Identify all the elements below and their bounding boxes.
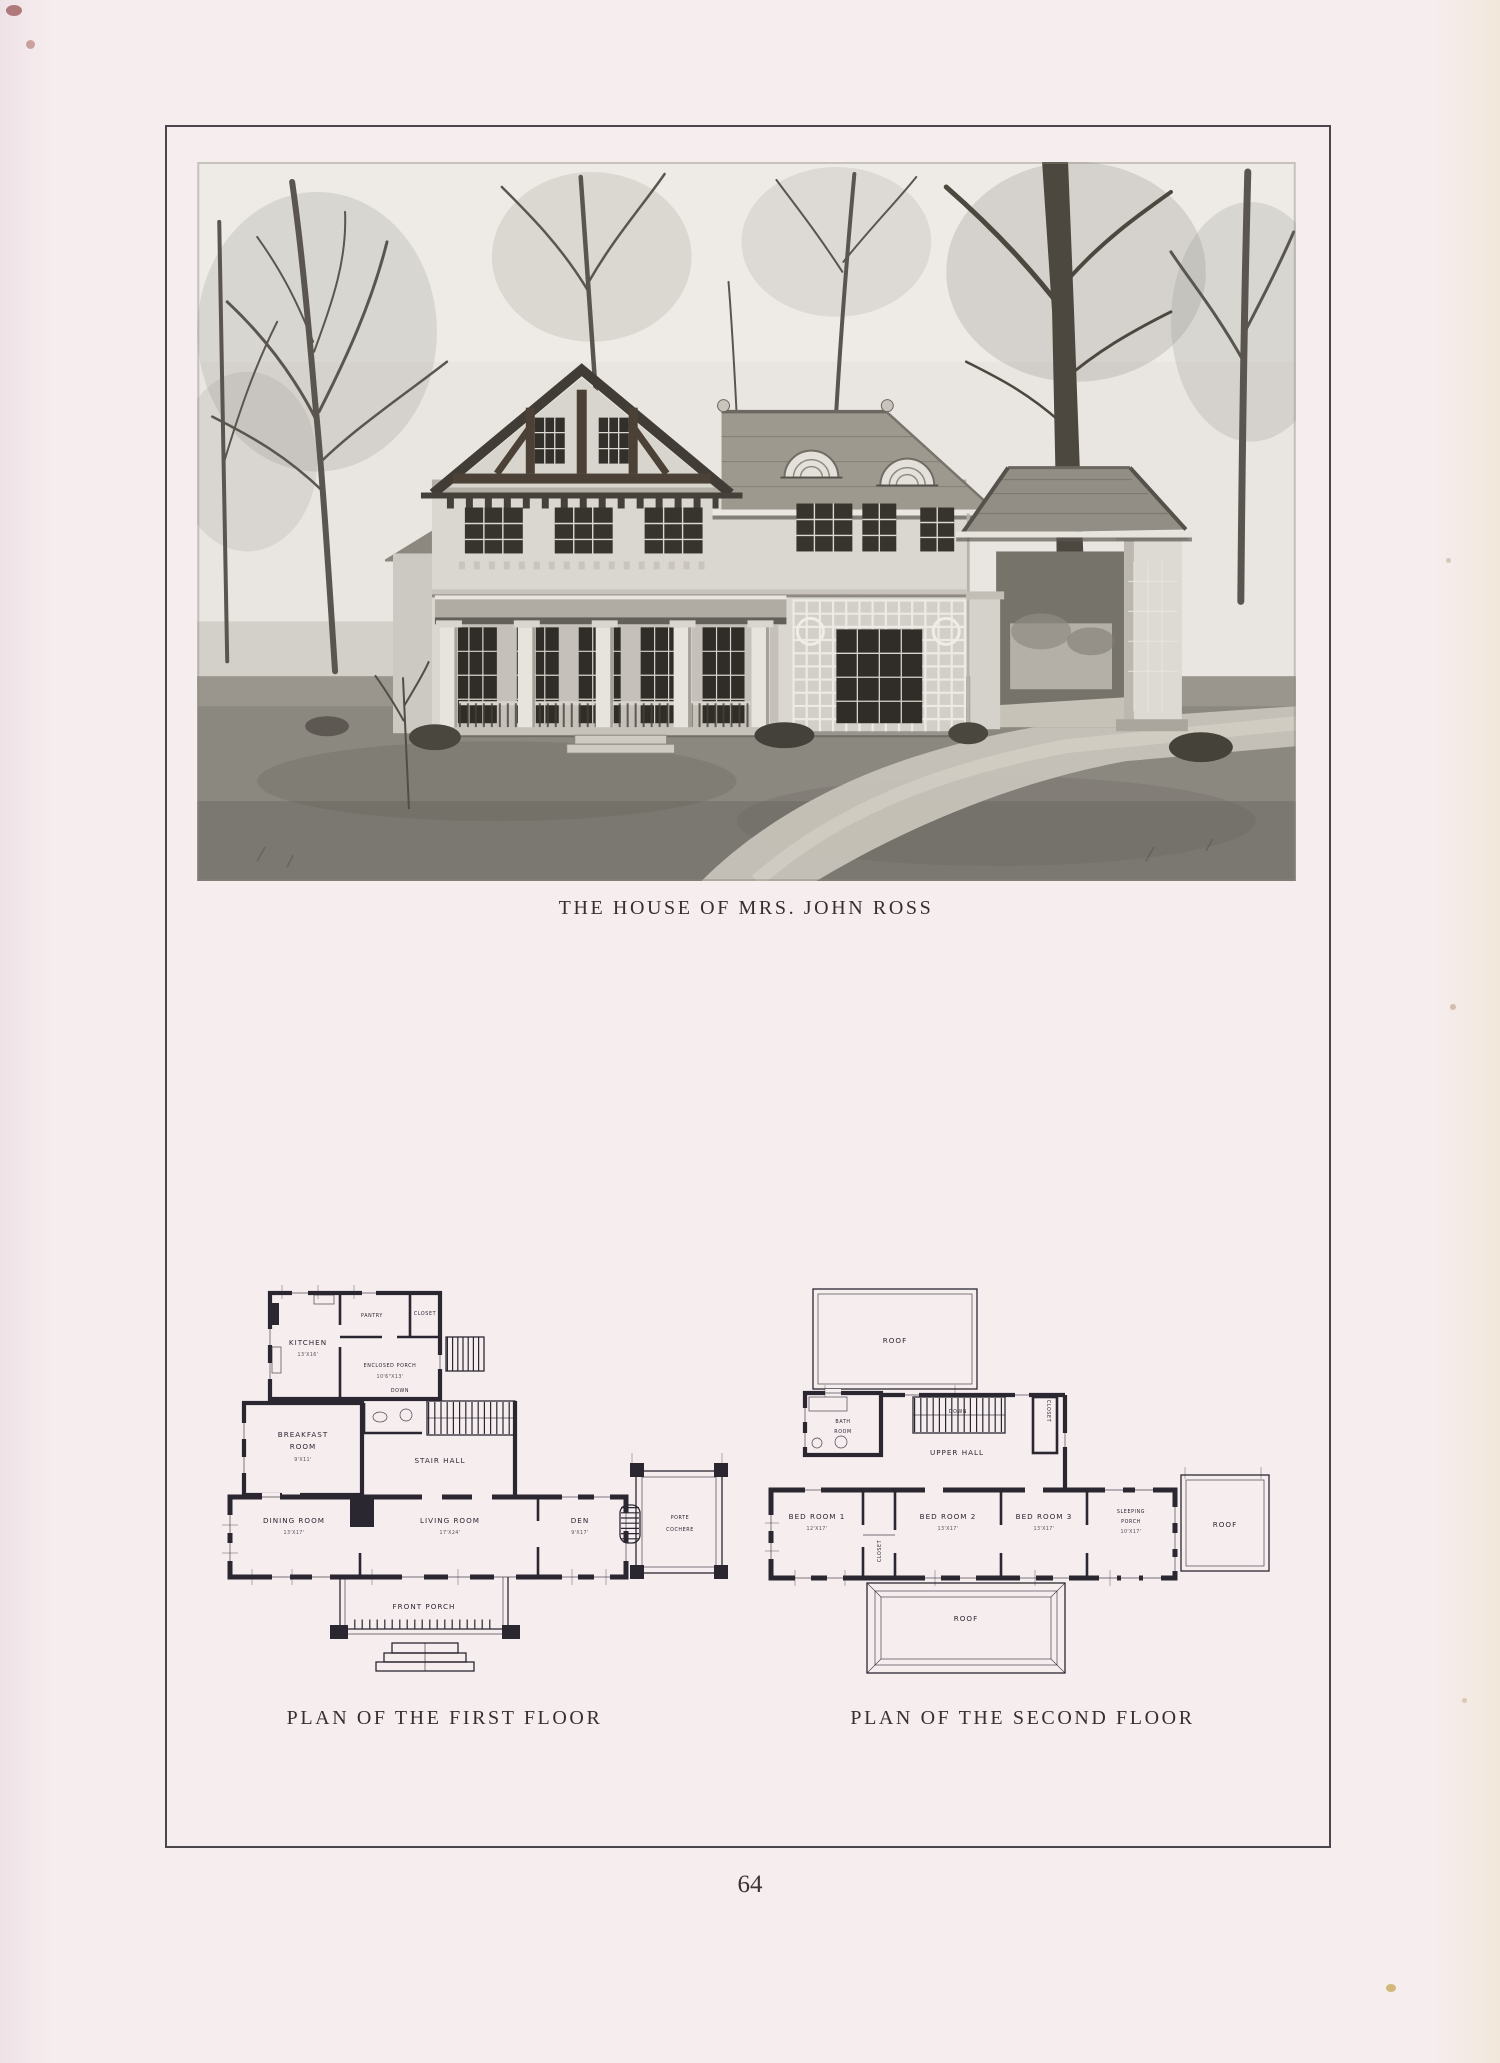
paper-speck [1450, 1004, 1456, 1010]
room-dim-den: 9'X17' [571, 1530, 588, 1536]
closet-label: CLOSET [1045, 1400, 1051, 1422]
room-label-upper-hall: UPPER HALL [930, 1448, 984, 1457]
first-floor-caption: PLAN OF THE FIRST FLOOR [222, 1707, 667, 1730]
room-label-breakfast-1: BREAKFAST [278, 1430, 328, 1439]
paper-speck [1446, 558, 1451, 563]
roof-label-top: ROOF [883, 1336, 907, 1345]
porte-cochere-plan [620, 1463, 728, 1579]
main-block-walls [226, 1493, 630, 1581]
dimension-ticks [765, 1385, 1261, 1586]
upper-stairs [913, 1397, 1005, 1433]
room-dim-enclosed-porch: 10'6"X13' [377, 1374, 404, 1380]
closet-label: CLOSET [877, 1540, 883, 1562]
room-label-front-porch: FRONT PORCH [393, 1602, 456, 1611]
room-label-bath-1: BATH [835, 1419, 850, 1425]
room-label-closet: CLOSET [414, 1311, 436, 1317]
roof-label-bottom: ROOF [954, 1614, 978, 1623]
room-dim-living: 17'X24' [440, 1530, 461, 1536]
room-dim-bed3: 13'X17' [1034, 1526, 1055, 1532]
room-label-porte-2: COCHERE [666, 1527, 694, 1533]
room-label-enclosed-porch: ENCLOSED PORCH [364, 1363, 417, 1369]
room-label-pantry: PANTRY [361, 1313, 383, 1319]
photo-caption: THE HOUSE OF MRS. JOHN ROSS [196, 897, 1296, 920]
house-photo [197, 162, 1296, 881]
paper-speck [1462, 1698, 1467, 1703]
lattice-bay [792, 599, 966, 731]
paper-speck [6, 5, 22, 16]
room-label-bed1: BED ROOM 1 [789, 1512, 846, 1521]
toilet-room [364, 1403, 422, 1433]
front-porch [435, 595, 787, 753]
room-dim-kitchen: 13'X16' [298, 1352, 319, 1358]
porte-cochere [956, 468, 1192, 732]
room-label-bed2: BED ROOM 2 [920, 1512, 977, 1521]
paper-speck [26, 40, 35, 49]
bath-hall-walls [801, 1389, 1069, 1490]
room-label-stair-hall: STAIR HALL [414, 1456, 465, 1465]
bedroom-row-walls [767, 1486, 1179, 1582]
room-dim-bed1: 12'X17' [807, 1526, 828, 1532]
page-number: 64 [0, 1871, 1500, 1899]
paper-speck [1386, 1984, 1396, 1992]
room-dim-sleeping: 10'X17' [1121, 1529, 1142, 1535]
second-floor-caption: PLAN OF THE SECOND FLOOR [800, 1707, 1245, 1730]
roof-bottom-plan [867, 1583, 1065, 1673]
front-porch-plan [330, 1577, 520, 1671]
room-label-dining: DINING ROOM [263, 1516, 325, 1525]
side-entry-steps [446, 1337, 484, 1371]
stairs-down-label: DOWN [949, 1409, 967, 1415]
room-label-living: LIVING ROOM [420, 1516, 480, 1525]
main-stairs [427, 1401, 515, 1435]
room-label-den: DEN [571, 1516, 589, 1525]
room-label-bath-2: ROOM [834, 1429, 851, 1435]
room-label-breakfast-2: ROOM [290, 1442, 317, 1451]
first-floor-plan: KITCHEN 13'X16' PANTRY CLOSET ENCLOSED P… [222, 1285, 737, 1695]
room-label-sleeping-2: PORCH [1121, 1519, 1141, 1525]
second-floor-plan: ROOF BATH ROOM DOWN UPPER HALL CLOSET CL… [765, 1285, 1280, 1695]
room-label-porte-1: PORTE [671, 1515, 690, 1521]
room-dim-dining: 13'X17' [284, 1530, 305, 1536]
room-label-kitchen: KITCHEN [289, 1338, 327, 1347]
breakfast-room-walls [240, 1403, 362, 1499]
room-label-sleeping-1: SLEEPING [1117, 1509, 1145, 1515]
roof-label-right: ROOF [1213, 1520, 1237, 1529]
stairs-down-label: DOWN [391, 1388, 409, 1394]
room-label-bed3: BED ROOM 3 [1016, 1512, 1073, 1521]
room-dim-breakfast: 9'X11' [294, 1457, 311, 1463]
room-dim-bed2: 13'X17' [938, 1526, 959, 1532]
